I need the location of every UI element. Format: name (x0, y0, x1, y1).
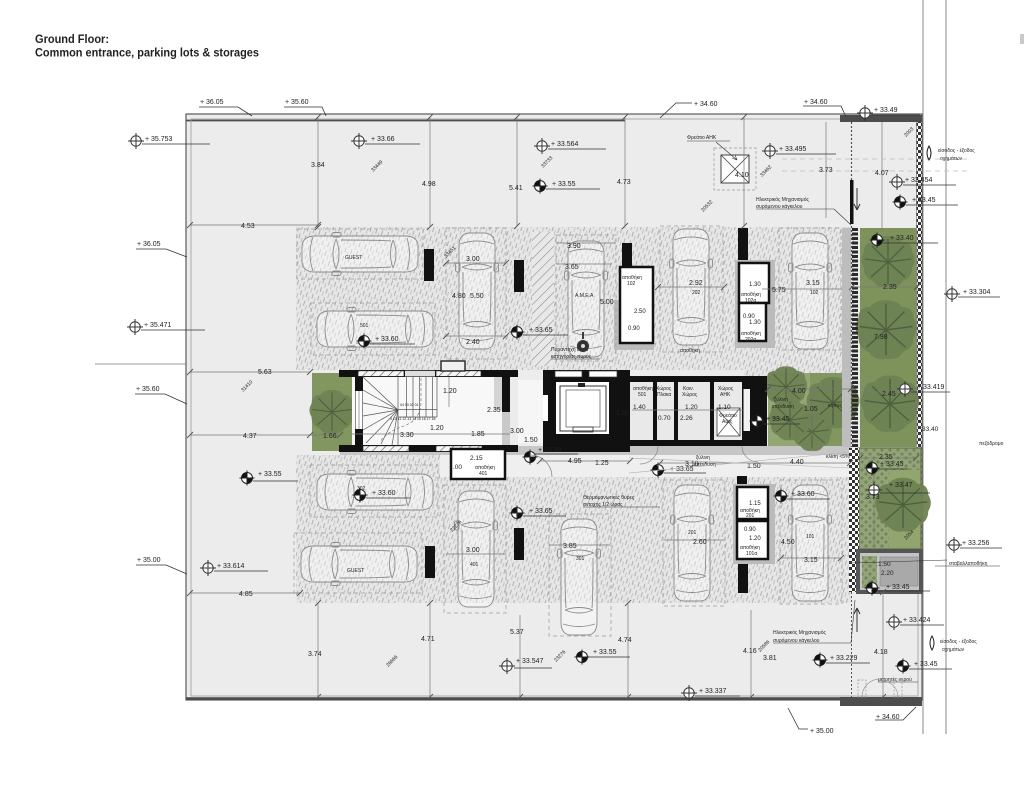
svg-text:2.35: 2.35 (883, 284, 897, 291)
svg-text:.00: .00 (453, 464, 462, 471)
svg-text:201: 201 (688, 530, 697, 536)
svg-text:0.70: 0.70 (658, 415, 671, 422)
svg-text:Χώρος: Χώρος (682, 391, 698, 398)
svg-text:33.40: 33.40 (922, 426, 939, 433)
svg-text:302: 302 (357, 486, 366, 492)
svg-text:1.20: 1.20 (685, 404, 698, 411)
svg-text:+ 33.614: + 33.614 (217, 563, 245, 570)
svg-text:3.15: 3.15 (804, 557, 818, 564)
svg-text:2.50: 2.50 (634, 309, 646, 315)
svg-text:5.41: 5.41 (509, 185, 523, 192)
svg-text:102: 102 (810, 290, 819, 296)
svg-text:Πλακα: Πλακα (657, 392, 671, 398)
svg-text:+ 33.45: + 33.45 (912, 197, 936, 204)
svg-text:4.74: 4.74 (618, 637, 632, 644)
svg-text:0.90: 0.90 (744, 527, 756, 533)
svg-text:+ 33.60: + 33.60 (372, 490, 396, 497)
svg-text:Θερμομονωτικές θύρες: Θερμομονωτικές θύρες (583, 494, 635, 501)
svg-text:04 03 02 01: 04 03 02 01 (400, 403, 419, 407)
svg-text:202α: 202α (745, 337, 756, 343)
svg-text:4.80: 4.80 (452, 293, 466, 300)
svg-text:2.92: 2.92 (689, 280, 703, 287)
svg-text:1.50: 1.50 (524, 437, 538, 444)
svg-text:Χώρος: Χώρος (718, 385, 734, 392)
svg-text:+ 33.45: + 33.45 (914, 661, 938, 668)
svg-text:+ 33.49: + 33.49 (874, 107, 898, 114)
svg-text:πεζόδρομο: πεζόδρομο (979, 440, 1004, 447)
svg-text:+ 36.05: + 36.05 (200, 99, 224, 106)
svg-text:ξύλινη: ξύλινη (774, 396, 788, 403)
svg-text:3.90: 3.90 (567, 243, 581, 250)
svg-text:A.M.E.A: A.M.E.A (575, 293, 594, 299)
svg-text:3.85: 3.85 (563, 543, 577, 550)
svg-text:3.65: 3.65 (565, 264, 579, 271)
svg-text:+ 33.55: + 33.55 (258, 471, 282, 478)
svg-text:+ 33.65: + 33.65 (529, 327, 553, 334)
svg-text:+ 33.424: + 33.424 (903, 617, 931, 624)
svg-text:2.45: 2.45 (882, 391, 896, 398)
svg-text:οχημάτων: οχημάτων (942, 646, 965, 653)
svg-text:+ 35.00: + 35.00 (810, 728, 834, 735)
svg-text:2.26: 2.26 (680, 415, 693, 422)
svg-text:κήπος: κήπος (828, 402, 842, 409)
svg-text:1.20: 1.20 (430, 425, 444, 432)
svg-text:Ηλεκτρικός Μηχανισμός: Ηλεκτρικός Μηχανισμός (756, 196, 809, 203)
svg-text:4.18: 4.18 (874, 649, 888, 656)
svg-text:αποθήκη: αποθήκη (475, 464, 495, 471)
svg-text:202: 202 (692, 290, 701, 296)
svg-text:2.35: 2.35 (879, 454, 893, 461)
svg-text:102: 102 (627, 281, 636, 287)
svg-text:2.35: 2.35 (487, 407, 501, 414)
svg-text:3.00: 3.00 (466, 547, 480, 554)
svg-text:4.50: 4.50 (781, 539, 795, 546)
svg-text:επένδυση: επένδυση (772, 403, 794, 410)
svg-text:+ 33.47: + 33.47 (889, 482, 913, 489)
svg-text:401: 401 (470, 562, 479, 568)
svg-text:+ 33.45: + 33.45 (886, 584, 910, 591)
svg-text:+ 33.60: + 33.60 (375, 336, 399, 343)
svg-text:+ 35.00: + 35.00 (137, 557, 161, 564)
svg-text:+ 35.471: + 35.471 (144, 322, 172, 329)
svg-text:+ 33.547: + 33.547 (516, 658, 544, 665)
svg-text:4.85: 4.85 (239, 591, 253, 598)
svg-text:+ 33.65: + 33.65 (529, 508, 553, 515)
svg-text:4.37: 4.37 (243, 433, 257, 440)
svg-text:1.30: 1.30 (749, 282, 761, 288)
svg-text:1.40: 1.40 (633, 404, 646, 411)
svg-text:+ 33.55: + 33.55 (593, 649, 617, 656)
svg-text:αποθήκη: αποθήκη (740, 544, 760, 551)
svg-text:είσοδος - έξοδος: είσοδος - έξοδος (938, 147, 975, 154)
svg-text:4.07: 4.07 (875, 170, 889, 177)
svg-text:4.16: 4.16 (743, 648, 757, 655)
svg-text:2.60: 2.60 (693, 539, 707, 546)
svg-text:4.71: 4.71 (421, 636, 435, 643)
svg-text:4.40: 4.40 (790, 459, 804, 466)
svg-text:οχημάτων: οχημάτων (940, 155, 963, 162)
svg-text:2.20: 2.20 (881, 570, 894, 577)
svg-text:9 10 11 12 13 14 15 16: 9 10 11 12 13 14 15 16 17 18 (390, 417, 436, 421)
svg-text:+ 33.45: + 33.45 (766, 416, 790, 423)
svg-text:Αψις: Αψις (722, 419, 733, 425)
svg-text:3.15: 3.15 (806, 280, 820, 287)
svg-text:1.66: 1.66 (323, 433, 337, 440)
svg-text:3.73: 3.73 (866, 494, 880, 501)
svg-text:+ 33.55: + 33.55 (552, 181, 576, 188)
svg-text:Φρεάτιο: Φρεάτιο (719, 412, 737, 419)
svg-text:3.00: 3.00 (510, 428, 524, 435)
svg-text:501: 501 (360, 323, 369, 329)
svg-text:102α: 102α (745, 298, 756, 304)
svg-text:3.00: 3.00 (466, 256, 480, 263)
svg-text:4.95: 4.95 (568, 458, 582, 465)
svg-text:1.20: 1.20 (443, 388, 457, 395)
svg-text:+ 34.60: + 34.60 (804, 99, 828, 106)
svg-text:4.00: 4.00 (792, 388, 806, 395)
svg-text:ΑΗΚ: ΑΗΚ (720, 392, 731, 398)
svg-text:1.20: 1.20 (749, 536, 761, 542)
svg-text:+ 33.256: + 33.256 (962, 540, 990, 547)
svg-text:2.40: 2.40 (466, 339, 480, 346)
svg-text:5.63: 5.63 (258, 369, 272, 376)
svg-text:3.73: 3.73 (819, 167, 833, 174)
svg-text:Φρεάτιο ΑΗΚ: Φρεάτιο ΑΗΚ (687, 134, 717, 141)
svg-text:4.98: 4.98 (422, 181, 436, 188)
svg-text:1.10: 1.10 (718, 404, 731, 411)
svg-text:+ 35.60: + 35.60 (285, 99, 309, 106)
svg-text:+ 33.454: + 33.454 (905, 177, 933, 184)
svg-text:2.15: 2.15 (470, 455, 483, 462)
svg-text:+ 33.229: + 33.229 (830, 655, 858, 662)
svg-text:+ 33.45: + 33.45 (880, 461, 904, 468)
svg-text:είσοδος - έξοδος: είσοδος - έξοδος (940, 638, 977, 645)
svg-text:5.37: 5.37 (510, 629, 524, 636)
svg-text:Χώρος: Χώρος (656, 385, 672, 392)
svg-text:101: 101 (806, 534, 815, 540)
svg-text:4.53: 4.53 (241, 223, 255, 230)
svg-text:5.50: 5.50 (470, 293, 484, 300)
svg-text:101α: 101α (746, 551, 757, 557)
svg-text:+ 33.564: + 33.564 (551, 141, 579, 148)
svg-text:+ 33.495: + 33.495 (779, 146, 807, 153)
svg-text:201: 201 (746, 513, 755, 519)
svg-text:αποθήκη: αποθήκη (741, 291, 761, 298)
svg-text:αποθήκη: αποθήκη (622, 274, 642, 281)
svg-text:3.74: 3.74 (308, 651, 322, 658)
svg-text:+ 33.40: + 33.40 (890, 235, 914, 242)
svg-text:+ 35.753: + 35.753 (145, 136, 173, 143)
svg-text:1.25: 1.25 (595, 460, 609, 467)
svg-text:5.75: 5.75 (772, 287, 786, 294)
svg-text:+ 34.60: + 34.60 (876, 714, 900, 721)
svg-text:+ 33.337: + 33.337 (699, 688, 727, 695)
svg-text:401: 401 (479, 471, 488, 477)
svg-text:+ 33.419: + 33.419 (917, 384, 945, 391)
svg-text:+ 33.304: + 33.304 (963, 289, 991, 296)
svg-text:αποθήκη: αποθήκη (633, 385, 653, 392)
svg-text:+ 33.38: + 33.38 (538, 447, 562, 454)
svg-text:3.84: 3.84 (311, 162, 325, 169)
svg-text:501: 501 (638, 392, 647, 398)
svg-text:Common entrance, parking lots: Common entrance, parking lots & storages (35, 46, 259, 60)
svg-text:αποθήκη: αποθήκη (741, 330, 761, 337)
svg-text:3.81: 3.81 (763, 655, 777, 662)
svg-text:0.90: 0.90 (628, 326, 640, 332)
svg-text:1.85: 1.85 (616, 410, 629, 417)
svg-text:Ηλεκτρικός Μηχανισμός: Ηλεκτρικός Μηχανισμός (773, 629, 826, 636)
svg-text:+ 34.60: + 34.60 (694, 101, 718, 108)
svg-text:1.05: 1.05 (804, 406, 818, 413)
svg-text:3.30: 3.30 (400, 432, 414, 439)
svg-text:GUEST: GUEST (347, 568, 364, 574)
svg-text:+ 35.60: + 35.60 (136, 386, 160, 393)
svg-text:1.85: 1.85 (471, 431, 485, 438)
svg-text:1.30: 1.30 (749, 320, 761, 326)
svg-text:Ground Floor:: Ground Floor: (35, 32, 109, 46)
svg-text:κλίση <5%: κλίση <5% (826, 454, 850, 460)
svg-text:αποθήκη: αποθήκη (680, 347, 700, 354)
svg-text:+ 33.66: + 33.66 (371, 136, 395, 143)
svg-text:7.98: 7.98 (874, 334, 888, 341)
svg-text:+ 33.60: + 33.60 (791, 491, 815, 498)
svg-text:+ 36.05: + 36.05 (137, 241, 161, 248)
svg-text:1.15: 1.15 (749, 501, 761, 507)
svg-text:4.73: 4.73 (617, 179, 631, 186)
svg-text:301: 301 (576, 556, 585, 562)
svg-text:4.10: 4.10 (735, 172, 749, 179)
svg-text:GUEST: GUEST (345, 255, 362, 261)
svg-text:ξύλινη: ξύλινη (696, 454, 710, 461)
svg-text:5.00: 5.00 (600, 299, 614, 306)
